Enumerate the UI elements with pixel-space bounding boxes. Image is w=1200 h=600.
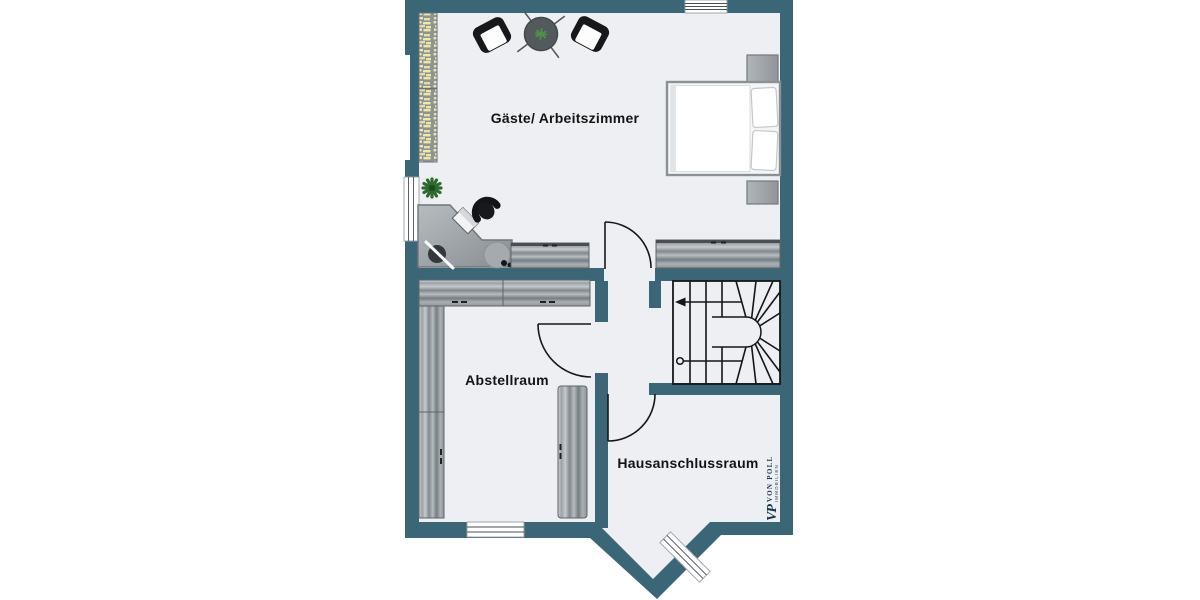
floor-plan-page: Gäste/ Arbeitszimmer Abstellraum Hausans… (0, 0, 1200, 600)
wall-hall-left-upper (595, 281, 608, 322)
wardrobe-top (419, 280, 590, 306)
double-bed (667, 82, 780, 175)
stair-newel-gap (712, 317, 761, 347)
nightstand-top (747, 55, 778, 82)
room-label-utility-room: Hausanschlussraum (617, 455, 758, 471)
wall-mid-left (405, 268, 604, 281)
bed-duvet (671, 86, 750, 172)
wardrobe-left (419, 306, 444, 518)
brand-watermark: VP VON POLL IMMOBILIEN (766, 455, 780, 521)
desk-knob (501, 260, 507, 266)
bookshelf (419, 13, 437, 162)
brand-text: VON POLL IMMOBILIEN (767, 455, 780, 502)
nightstand-bottom (747, 181, 778, 204)
wardrobe-right (558, 386, 587, 518)
stair-start-circle (677, 358, 684, 365)
bed-pillow-top (751, 87, 778, 127)
bed-pillow-bottom (751, 130, 778, 170)
floor-plan-canvas (0, 0, 1200, 600)
room-label-guest-room: Gäste/ Arbeitszimmer (491, 110, 639, 126)
brand-name: VON POLL (767, 455, 774, 502)
storage-window (467, 522, 524, 537)
room-label-storage-room: Abstellraum (465, 372, 549, 388)
top-window (685, 0, 727, 13)
brand-subname: IMMOBILIEN (775, 455, 780, 502)
sideboard-right (656, 240, 780, 268)
brand-logo: VP (766, 505, 780, 521)
wall-mid-right (655, 268, 793, 281)
wall-hall-left-lower (595, 373, 608, 528)
left-upper-window (404, 55, 410, 160)
sideboard-left (511, 243, 589, 268)
left-window (404, 177, 419, 241)
wall-hall-right-stub (649, 281, 661, 308)
